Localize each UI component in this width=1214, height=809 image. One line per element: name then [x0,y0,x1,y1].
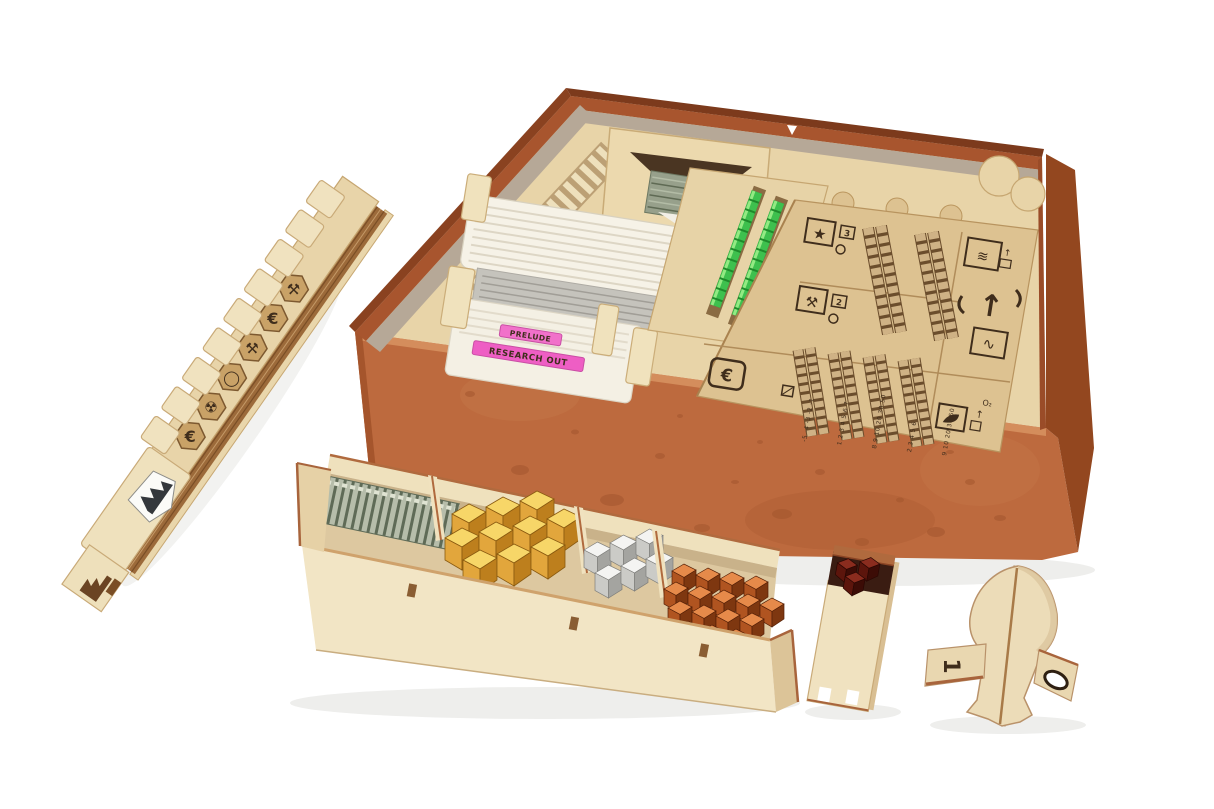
first-player-rocket: 1 [925,566,1078,726]
oxygen-arrow-icon: ↑ [974,409,984,421]
hex-tile-icon: € [266,309,278,328]
waves-icon: ≋ [975,248,989,266]
hex-tile-icon: ⚒ [287,280,300,298]
hex-tile-icon: € [184,427,196,446]
player-one-number: 1 [938,658,963,673]
hex-tile-icon: ☢ [204,398,217,416]
hex-tile-icon: ⚒ [245,339,258,357]
oxygen-label: O₂ [982,398,993,408]
cube-box-notch [845,689,859,705]
cube-box-notch [817,687,831,703]
ocean-arrow-icon: ↑ [1003,248,1012,259]
product-photo: € ☢ ◯ ⚒ € ⚒ [0,0,1214,809]
corner-round-divider [1011,177,1045,211]
star-icon: ★ [812,224,828,244]
tools-icon: ⚒ [804,294,819,312]
hex-tile-icon: ◯ [223,369,240,387]
